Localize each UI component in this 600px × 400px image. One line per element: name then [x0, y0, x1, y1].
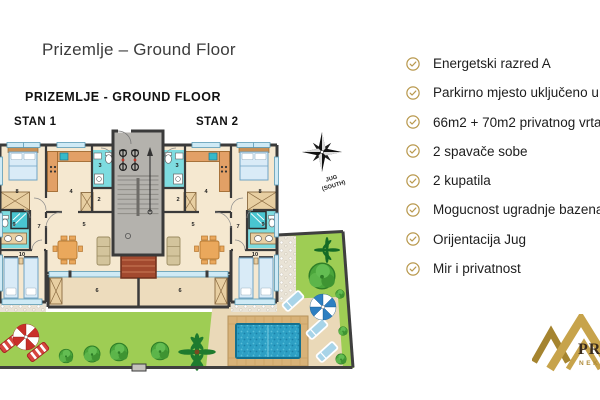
feature-label: Mir i privatnost [433, 261, 521, 276]
room-number-4: 4 [204, 189, 208, 195]
room-number-10: 10 [19, 252, 25, 258]
feature-label: Energetski razred A [433, 56, 551, 71]
feature-item: Energetski razred A [406, 55, 600, 72]
pool-water [236, 324, 300, 358]
agency-logo: PRI NEK [532, 314, 600, 389]
apartment-1-label: STAN 1 [14, 116, 56, 128]
apartment-2-graphics [139, 143, 279, 308]
feature-label: Orijentacija Jug [433, 232, 526, 247]
check-circle-icon [406, 232, 420, 246]
room-number-8: 8 [15, 189, 18, 195]
feature-label: 2 spavače sobe [433, 144, 528, 159]
room-number-5: 5 [82, 222, 85, 228]
feature-item: 2 kupatila [406, 172, 600, 189]
feature-item: 66m2 + 70m2 privatnog vrta i [406, 114, 600, 131]
room-number-6: 6 [178, 288, 181, 294]
bush [84, 346, 100, 362]
feature-label: Mogucnost ugradnje bazena [433, 202, 600, 217]
room-number-10: 10 [252, 252, 258, 258]
floorplan-flyer-page: { "page": { "title": "Prizemlje – Ground… [0, 0, 600, 400]
gravel-path [278, 236, 296, 302]
feature-label: Parkirno mjesto uključeno u c [433, 85, 600, 100]
lawn [0, 231, 354, 368]
feature-item: Orijentacija Jug [406, 231, 600, 248]
compass-label-south: (SOUTH) [321, 180, 346, 193]
check-circle-icon [406, 174, 420, 188]
room-numbers: 84325791068432579106 [12, 163, 264, 294]
feature-item: Mir i privatnost [406, 260, 600, 277]
check-circle-icon [406, 203, 420, 217]
room-number-4: 4 [69, 189, 73, 195]
garden-lounger [27, 342, 50, 363]
feature-item: Parkirno mjesto uključeno u c [406, 84, 600, 101]
check-circle-icon [406, 57, 420, 71]
plot-boundary [0, 232, 353, 368]
room-number-9: 9 [261, 222, 264, 228]
apartment-2-label: STAN 2 [196, 116, 238, 128]
check-circle-icon [406, 262, 420, 276]
room-number-6: 6 [95, 288, 98, 294]
check-circle-icon [406, 144, 420, 158]
gravel-strip-left [0, 302, 46, 312]
palm-tree [178, 333, 216, 371]
room-number-3: 3 [175, 163, 178, 169]
feature-item: Mogucnost ugradnje bazena [406, 201, 600, 218]
bush [59, 349, 73, 363]
spiky-plant [314, 237, 340, 263]
garden-gate [132, 364, 146, 371]
plan-heading: PRIZEMLJE - GROUND FLOOR [25, 90, 221, 104]
bush [336, 354, 346, 364]
central-wall-unit [129, 214, 148, 252]
apartment-1-graphics [0, 143, 139, 308]
check-circle-icon [406, 115, 420, 129]
bush [151, 342, 169, 360]
bush [110, 343, 128, 361]
bush [339, 327, 348, 336]
gravel-strip-right [231, 302, 277, 312]
compass-rose: JUG (SOUTH) [302, 132, 346, 193]
page-title: Prizemlje – Ground Floor [42, 40, 236, 60]
room-number-2: 2 [176, 197, 179, 203]
garden-lounger [0, 333, 21, 354]
room-number-2: 2 [97, 197, 100, 203]
feature-label: 2 kupatila [433, 173, 491, 188]
room-number-3: 3 [98, 163, 101, 169]
check-circle-icon [406, 86, 420, 100]
room-number-5: 5 [191, 222, 194, 228]
garden [0, 231, 354, 371]
logo-subtitle-text: NEK [579, 360, 600, 367]
room-number-9: 9 [12, 222, 15, 228]
red-parasol [13, 324, 39, 350]
swimming-pool [228, 316, 308, 366]
room-number-7: 7 [236, 224, 239, 230]
bush [336, 290, 345, 299]
stairwell [113, 129, 163, 256]
pool-lounger [316, 341, 338, 362]
blue-parasol [310, 294, 336, 320]
compass-label-jug: JUG [325, 174, 339, 183]
bicycle-icon [132, 150, 139, 171]
feature-label: 66m2 + 70m2 privatnog vrta i [433, 115, 600, 130]
pool-patio [206, 297, 343, 368]
building: 84325791068432579106 [0, 129, 279, 308]
pool-lounger [282, 290, 304, 311]
big-tree [309, 263, 335, 289]
terrace [48, 275, 229, 307]
pool-lounger [306, 318, 328, 339]
room-number-7: 7 [37, 224, 40, 230]
room-number-8: 8 [258, 189, 261, 195]
bicycle-icon [120, 150, 127, 171]
feature-item: 2 spavače sobe [406, 143, 600, 160]
logo-name-text: PRI [578, 341, 600, 359]
entrance-steps [121, 254, 156, 278]
feature-list: Energetski razred A Parkirno mjesto uklj… [406, 55, 600, 289]
